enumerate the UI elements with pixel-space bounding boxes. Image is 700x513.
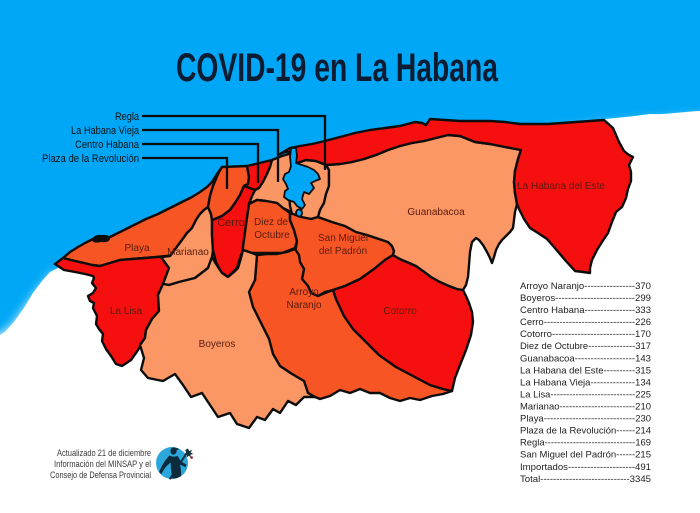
svg-text:Cerro: Cerro	[217, 217, 245, 229]
svg-text:La Lisa: La Lisa	[110, 306, 143, 317]
svg-text:Plaza de la Revolución: Plaza de la Revolución	[42, 153, 139, 165]
svg-text:San Miguel del Padrón------215: San Miguel del Padrón------215	[520, 450, 651, 461]
svg-text:Cerro-------------------------: Cerro-----------------------------226	[520, 317, 651, 328]
svg-text:COVID-19 en La Habana: COVID-19 en La Habana	[176, 46, 499, 90]
svg-text:Marianao----------------------: Marianao------------------------210	[520, 402, 651, 413]
svg-text:Consejo de Defensa Provincial: Consejo de Defensa Provincial	[50, 470, 151, 480]
svg-text:Playa: Playa	[124, 243, 149, 254]
svg-text:Importados--------------------: Importados---------------------491	[520, 462, 651, 473]
svg-text:Regla-------------------------: Regla-----------------------------169	[520, 438, 651, 449]
svg-text:Regla: Regla	[115, 111, 140, 123]
svg-text:Diez de: Diez de	[254, 217, 288, 228]
svg-text:Actualizado 21 de diciembre: Actualizado 21 de diciembre	[57, 448, 151, 458]
svg-text:Diez de Octubre---------------: Diez de Octubre---------------317	[520, 341, 651, 352]
svg-text:Cotorro-----------------------: Cotorro--------------------------170	[520, 329, 651, 340]
svg-text:Naranjo: Naranjo	[286, 300, 321, 311]
svg-text:Marianao: Marianao	[167, 247, 209, 258]
svg-text:Centro Habana: Centro Habana	[75, 139, 140, 151]
svg-text:Arroyo: Arroyo	[289, 287, 319, 298]
svg-text:Centro Habana----------------3: Centro Habana----------------333	[520, 305, 651, 316]
svg-text:Octubre: Octubre	[254, 230, 290, 241]
svg-text:Guanabacoa-------------------1: Guanabacoa-------------------143	[520, 353, 651, 364]
svg-text:Cotorro: Cotorro	[383, 306, 417, 317]
svg-text:Playa-------------------------: Playa-----------------------------230	[520, 414, 651, 425]
svg-text:Arroyo Naranjo----------------: Arroyo Naranjo----------------370	[520, 281, 651, 292]
svg-text:del Padrón: del Padrón	[319, 246, 367, 257]
svg-text:Información del MINSAP y el: Información del MINSAP y el	[54, 459, 151, 469]
svg-text:Plaza de la Revolución------21: Plaza de la Revolución------214	[520, 426, 651, 437]
svg-text:Boyeros-----------------------: Boyeros-------------------------299	[520, 293, 651, 304]
svg-text:La Habana del Este: La Habana del Este	[517, 181, 605, 192]
svg-text:La Lisa-----------------------: La Lisa---------------------------225	[520, 389, 651, 400]
svg-text:Guanabacoa: Guanabacoa	[407, 207, 465, 218]
svg-text:Total-------------------------: Total----------------------------3345	[520, 474, 651, 485]
svg-text:La Habana Vieja: La Habana Vieja	[71, 125, 140, 137]
svg-text:La Habana Vieja--------------1: La Habana Vieja--------------134	[520, 377, 651, 388]
svg-text:Boyeros: Boyeros	[199, 339, 236, 350]
svg-text:La Habana del Este----------31: La Habana del Este----------315	[520, 365, 651, 376]
svg-text:San Miguel: San Miguel	[318, 233, 368, 244]
